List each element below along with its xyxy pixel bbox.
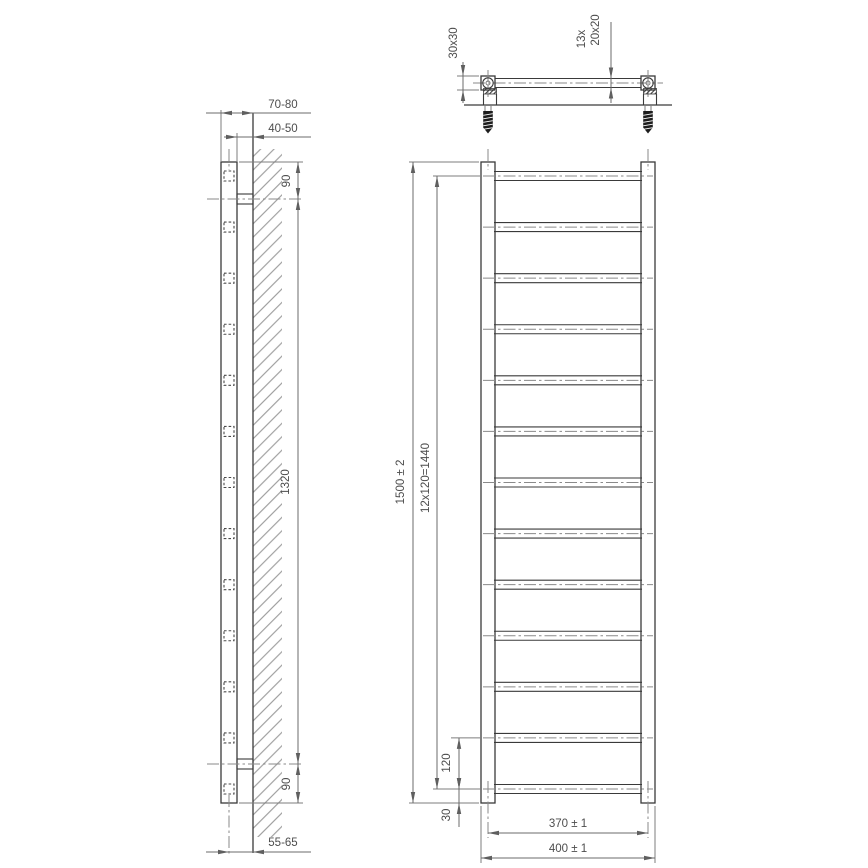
radiator-technical-drawing: 30x30 13x 20x20	[0, 0, 868, 868]
rung-section	[224, 631, 234, 641]
rung-section	[224, 682, 234, 692]
dim-55-65: 55-65	[206, 837, 311, 852]
rung	[483, 682, 653, 691]
dim-400: 400 ± 1	[481, 843, 655, 858]
dim-30: 30	[441, 777, 459, 827]
total-width-label: 400 ± 1	[549, 843, 587, 855]
rung-section	[224, 426, 234, 436]
technical-drawing-page: 30x30 13x 20x20	[0, 0, 868, 868]
rung-section	[224, 478, 234, 488]
dim-120: 120	[441, 738, 459, 789]
rung-count-label: 13x	[576, 29, 588, 48]
dim-30x30: 30x30	[448, 27, 479, 103]
rung-section	[224, 733, 234, 743]
rung	[483, 733, 653, 742]
bracket-hatch	[644, 89, 657, 95]
rung-section	[224, 273, 234, 283]
rung-profile-label: 20x20	[590, 14, 602, 45]
dim-90-top: 90	[281, 162, 298, 199]
rung	[483, 325, 653, 334]
rung	[483, 580, 653, 589]
bracket-hatch	[484, 89, 497, 95]
rung	[483, 223, 653, 232]
wall-to-axis-label: 55-65	[268, 837, 297, 849]
rung-section	[224, 784, 234, 794]
rung	[483, 529, 653, 538]
right-mount	[641, 70, 657, 134]
rung	[483, 478, 653, 487]
total-height-label: 1500 ± 2	[395, 460, 407, 505]
dim-1500: 1500 ± 2	[395, 162, 413, 803]
rung-section	[224, 580, 234, 590]
side-view: 70-80 40-50 90 1320 90 55-65	[206, 99, 311, 856]
dim-90-bottom: 90	[281, 764, 298, 803]
left-mount	[481, 70, 497, 134]
screw-shank	[485, 106, 491, 112]
rung-section	[224, 171, 234, 181]
rung-pitch-label: 12x120=1440	[420, 443, 432, 513]
screw-shank	[645, 106, 651, 112]
rung	[483, 631, 653, 640]
top-view: 30x30 13x 20x20	[448, 14, 672, 133]
rung	[483, 376, 653, 385]
rung-section	[224, 324, 234, 334]
wall-to-front-label: 70-80	[268, 99, 297, 111]
dim-1320: 1320	[280, 199, 298, 764]
rung	[483, 785, 653, 794]
dim-12x120: 12x120=1440	[420, 176, 437, 789]
rung-section	[224, 375, 234, 385]
dim-70-80: 70-80	[206, 99, 311, 113]
rung	[483, 172, 653, 181]
rung	[483, 274, 653, 283]
dim-13x-20x20: 13x 20x20	[576, 14, 611, 103]
bottom-rung-offset-label: 30	[441, 809, 453, 822]
wall-to-back-label: 40-50	[268, 123, 297, 135]
axis-width-label: 370 ± 1	[549, 818, 587, 830]
tube-profile-label: 30x30	[448, 27, 460, 58]
rung	[483, 427, 653, 436]
rung-section	[224, 222, 234, 232]
top-bracket-offset-label: 90	[281, 175, 293, 188]
dim-370: 370 ± 1	[488, 818, 648, 833]
wall-hatch	[253, 149, 282, 837]
last-rung-pitch-label: 120	[441, 753, 453, 772]
tube-side-profile	[221, 162, 237, 803]
rung-sections	[224, 171, 234, 794]
bottom-bracket-offset-label: 90	[281, 778, 293, 791]
front-view: 1500 ± 2 12x120=1440 120 30 370 ± 1 400 …	[395, 149, 655, 863]
rungs	[483, 172, 653, 794]
rung-section	[224, 529, 234, 539]
bracket-span-label: 1320	[280, 469, 292, 495]
